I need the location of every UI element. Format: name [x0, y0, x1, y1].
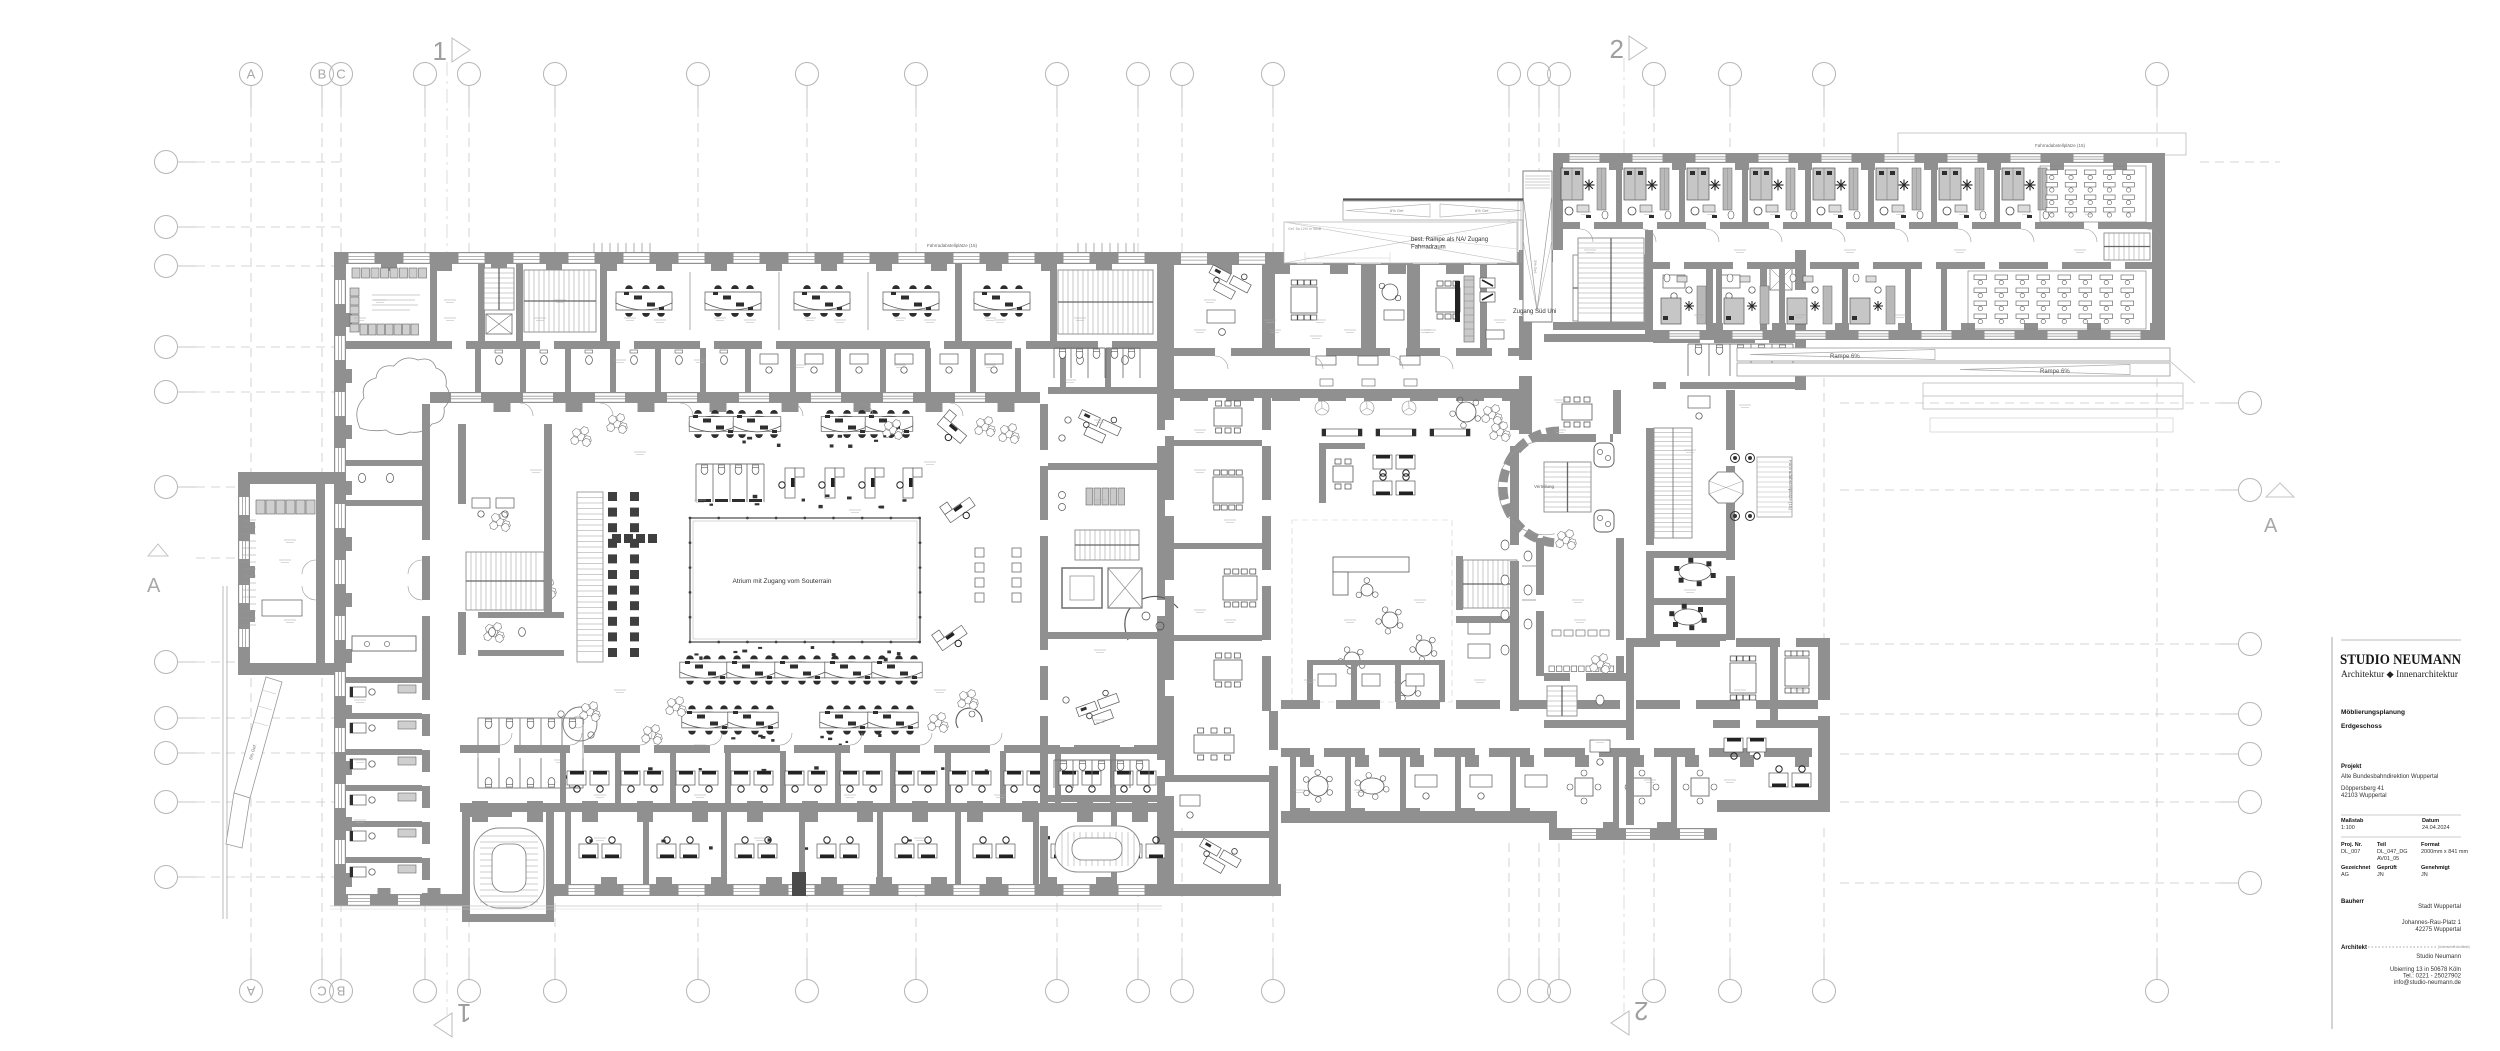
svg-text:AV01_05: AV01_05 [2377, 856, 2399, 862]
svg-text:DL_047_DG: DL_047_DG [2377, 849, 2408, 855]
svg-text:Architektur ◆ Innenarchitekt: Architektur ◆ Innenarchitektur [2341, 669, 2458, 679]
svg-text:best. Rampe als NA/ Zugang: best. Rampe als NA/ Zugang [1411, 237, 1488, 243]
svg-text:24.04.2024: 24.04.2024 [2422, 825, 2450, 831]
svg-text:Stadt Wuppertal: Stadt Wuppertal [2418, 904, 2461, 910]
svg-text:2: 2 [1634, 996, 1648, 1026]
svg-text:Bauherr: Bauherr [2341, 899, 2365, 905]
svg-text:Möblierungsplanung: Möblierungsplanung [2341, 709, 2405, 716]
svg-text:8% Gef.: 8% Gef. [1390, 208, 1404, 213]
svg-text:Fahrradabstellplätze (15): Fahrradabstellplätze (15) [927, 243, 978, 248]
svg-text:STUDIO NEUMANN: STUDIO NEUMANN [2340, 652, 2461, 668]
svg-text:Alte Bundesbahndirektion Wuppe: Alte Bundesbahndirektion Wuppertal [2341, 774, 2438, 780]
svg-text:Format: Format [2421, 842, 2440, 848]
svg-text:JN: JN [2421, 872, 2428, 878]
svg-text:info@studio-neumann.de: info@studio-neumann.de [2394, 980, 2462, 986]
svg-text:1: 1 [433, 36, 447, 66]
svg-text:42103 Wuppertal: 42103 Wuppertal [2341, 793, 2387, 799]
svg-text:(Unterschrift Architekt): (Unterschrift Architekt) [2438, 945, 2470, 949]
svg-text:Rampe 6%: Rampe 6% [1830, 354, 1860, 360]
svg-text:Fahrradabstellplätze (15): Fahrradabstellplätze (15) [2035, 143, 2086, 148]
svg-text:Fahrradraum: Fahrradraum [1411, 245, 1446, 251]
svg-text:Genehmigt: Genehmigt [2421, 865, 2450, 871]
svg-text:Projekt: Projekt [2341, 764, 2361, 770]
svg-text:Gef. 5a 12% m WBB: Gef. 5a 12% m WBB [1288, 227, 1322, 231]
svg-text:1: 1 [457, 998, 471, 1028]
svg-text:A: A [246, 984, 255, 999]
svg-text:Zugang Süd Uni: Zugang Süd Uni [1513, 309, 1556, 315]
svg-text:C: C [317, 984, 326, 999]
svg-text:Teil: Teil [2377, 842, 2387, 848]
svg-text:2% Gef.: 2% Gef. [1533, 260, 1537, 274]
svg-text:Architekt: Architekt [2341, 945, 2367, 951]
svg-text:AG: AG [2341, 872, 2349, 878]
svg-text:2000mm x 841 mm: 2000mm x 841 mm [2421, 849, 2468, 855]
svg-text:Studio Neumann: Studio Neumann [2416, 954, 2461, 960]
svg-text:A: A [147, 575, 161, 597]
svg-text:A: A [247, 67, 256, 82]
svg-text:Proj. Nr.: Proj. Nr. [2341, 842, 2363, 848]
svg-text:Erdgeschoss: Erdgeschoss [2341, 723, 2382, 730]
svg-text:DL_007: DL_007 [2341, 849, 2360, 855]
svg-text:Verteilung: Verteilung [1534, 484, 1555, 489]
svg-text:Rampe 6%: Rampe 6% [2040, 369, 2070, 375]
svg-text:B: B [337, 984, 346, 999]
svg-text:Fahrradabstellplätze (15): Fahrradabstellplätze (15) [1788, 460, 1793, 511]
svg-text:1:100: 1:100 [2341, 825, 2355, 831]
svg-text:Atrium mit Zugang vom Souterra: Atrium mit Zugang vom Souterrain [733, 578, 832, 585]
svg-text:Johannes-Rau-Platz 1: Johannes-Rau-Platz 1 [2402, 920, 2462, 926]
svg-text:JN: JN [2377, 872, 2384, 878]
svg-text:2: 2 [1610, 34, 1624, 64]
svg-text:Tel.: 0221 - 25027902: Tel.: 0221 - 25027902 [2403, 974, 2462, 980]
svg-text:Ubierring 13 in 50678 Köln: Ubierring 13 in 50678 Köln [2390, 967, 2461, 973]
svg-text:Geprüft: Geprüft [2377, 865, 2397, 871]
svg-text:C: C [336, 67, 345, 82]
svg-text:Maßstab: Maßstab [2341, 818, 2364, 824]
svg-text:42275 Wuppertal: 42275 Wuppertal [2415, 927, 2461, 933]
svg-text:8% Gef.: 8% Gef. [1475, 208, 1489, 213]
svg-text:Datum: Datum [2422, 818, 2439, 824]
svg-text:A: A [2264, 515, 2278, 537]
svg-text:Gezeichnet: Gezeichnet [2341, 865, 2371, 871]
svg-text:Döppersberg 41: Döppersberg 41 [2341, 786, 2385, 792]
svg-text:B: B [318, 67, 327, 82]
